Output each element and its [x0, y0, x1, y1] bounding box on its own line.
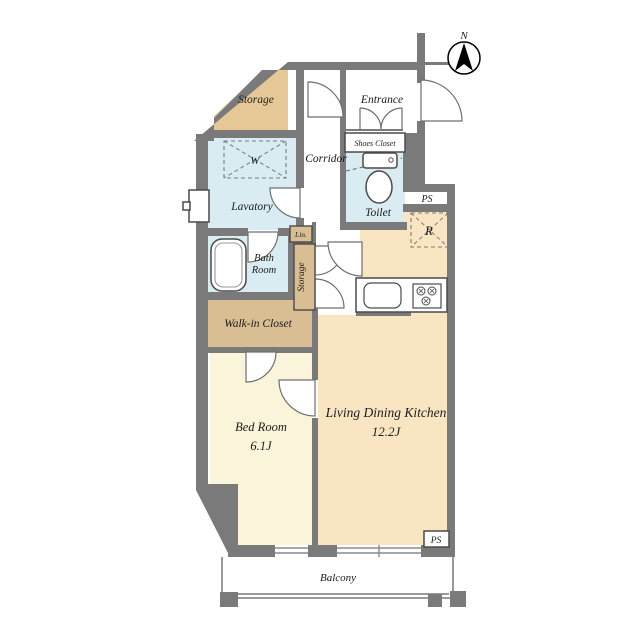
corridor-label: Corridor [305, 153, 347, 165]
room-lavatory-floor [208, 138, 296, 230]
bathtub-icon [211, 239, 246, 291]
entrance-door-arc [421, 80, 462, 121]
corridor-door-arc [308, 82, 343, 117]
meter-box [183, 190, 209, 222]
compass-n-label: N [459, 30, 468, 42]
walk-in-closet-label: Walk-in Closet [224, 318, 292, 330]
toilet-label: Toilet [365, 207, 392, 219]
washer-label: W [250, 155, 260, 167]
bath-room-label-1: Bath [254, 253, 274, 264]
lavatory-label: Lavatory [230, 201, 273, 213]
balcony-post [428, 594, 442, 607]
balcony-post [220, 592, 238, 607]
floor-plan: N Storage Entrance Shoes Closet Corridor… [0, 0, 640, 640]
kitchen-counter [356, 278, 447, 312]
ldk-size-label: 12.2J [372, 424, 402, 439]
bed-room-size-label: 6.1J [250, 439, 273, 453]
bed-room-label: Bed Room [235, 420, 287, 434]
shoes-closet-label: Shoes Closet [354, 139, 396, 148]
stove-icon [413, 284, 441, 308]
ps-lower-label: PS [430, 536, 442, 546]
entrance-inner-door-arc [360, 108, 381, 129]
windows [275, 545, 421, 557]
storage-top-label: Storage [238, 94, 274, 106]
ldk-door-arc [328, 242, 362, 276]
ps-upper-label: PS [420, 194, 432, 205]
balcony-post [450, 591, 466, 607]
bath-room-label-2: Room [251, 265, 277, 276]
storage-closet-label: Storage [297, 262, 307, 292]
entrance-label: Entrance [360, 94, 403, 106]
compass-icon: N [448, 30, 480, 74]
entrance-inner-door-arc [381, 108, 402, 129]
ldk-label: Living Dining Kitchen [325, 405, 447, 420]
sink-icon [364, 283, 401, 308]
refrigerator-label: R [424, 224, 433, 238]
linen-label: Lin. [294, 230, 307, 239]
storage-closet-door-arc [315, 279, 344, 308]
balcony-label: Balcony [320, 572, 356, 584]
